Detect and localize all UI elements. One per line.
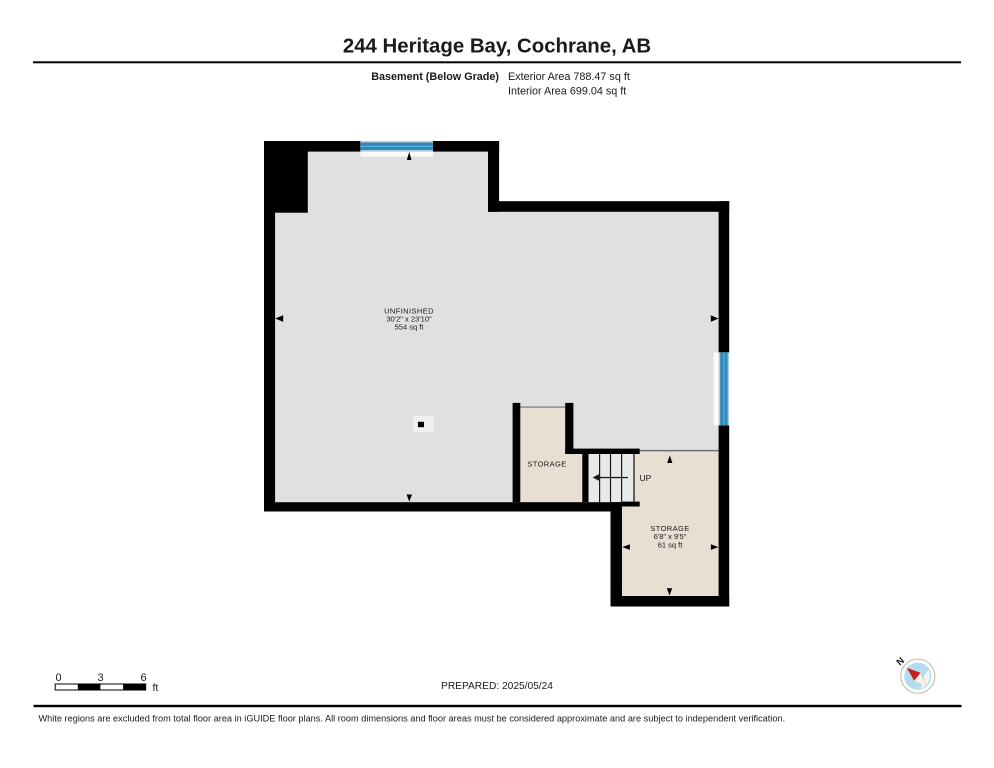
svg-text:61 sq ft: 61 sq ft xyxy=(658,541,684,550)
svg-text:6: 6 xyxy=(140,672,146,684)
svg-text:White regions are excluded fro: White regions are excluded from total fl… xyxy=(39,714,786,724)
svg-text:Interior Area 699.04 sq ft: Interior Area 699.04 sq ft xyxy=(508,86,626,98)
svg-text:ft: ft xyxy=(153,682,159,694)
svg-text:3: 3 xyxy=(97,672,103,684)
svg-text:STORAGE: STORAGE xyxy=(527,459,566,468)
svg-text:Exterior Area 788.47 sq ft: Exterior Area 788.47 sq ft xyxy=(508,71,630,83)
svg-text:Basement (Below Grade): Basement (Below Grade) xyxy=(371,71,499,83)
svg-text:UP: UP xyxy=(640,473,652,483)
svg-text:PREPARED: 2025/05/24: PREPARED: 2025/05/24 xyxy=(441,681,553,692)
svg-text:244 Heritage Bay, Cochrane, AB: 244 Heritage Bay, Cochrane, AB xyxy=(343,36,651,58)
svg-text:554 sq ft: 554 sq ft xyxy=(395,323,425,332)
svg-text:0: 0 xyxy=(55,672,61,684)
